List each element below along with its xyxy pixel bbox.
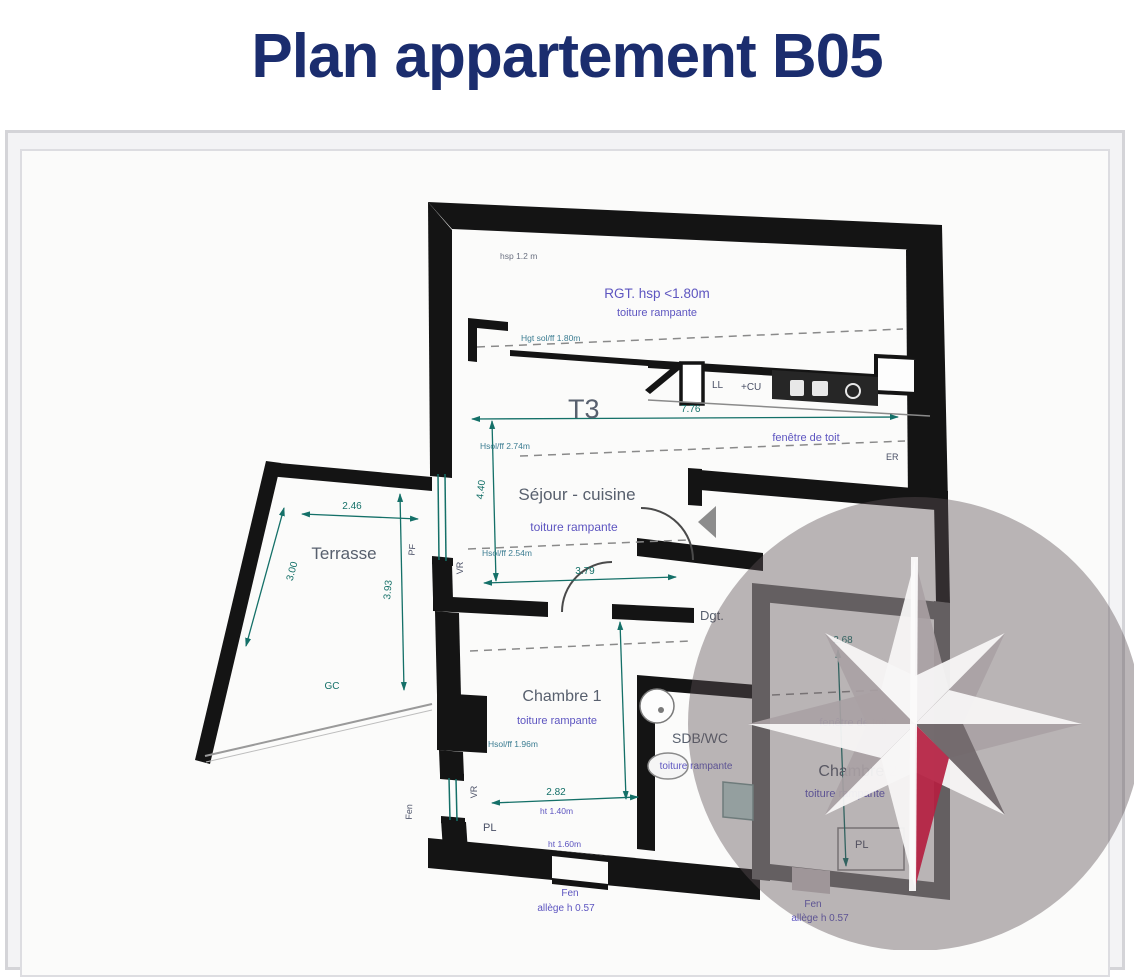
hsp-note: hsp 1.2 m (500, 251, 537, 261)
dim-379: 3.79 (575, 566, 595, 577)
dim-440: 4.40 (475, 479, 488, 500)
tag-vr-1: VR (455, 561, 465, 574)
floor-plan-drawing: T3 Séjour - cuisine Terrasse Chambre 1 S… (0, 0, 1134, 950)
dim-300: 3.00 (285, 560, 301, 582)
tag-pf: PF (407, 543, 418, 556)
terrasse-railing-2 (206, 710, 432, 762)
duct-box (876, 356, 916, 394)
room-terrasse: Terrasse (311, 544, 376, 563)
window-pf-terrasse (430, 468, 453, 566)
tag-vr-2: VR (469, 785, 479, 798)
tag-fen-side: Fen (404, 804, 415, 820)
hsol274-note: Hsol/ff 2.74m (480, 441, 530, 451)
dim-393: 3.93 (382, 579, 395, 600)
sill-note-1: allège h 0.57 (537, 903, 595, 914)
ht160-note: ht 1.60m (548, 839, 581, 849)
tag-er: ER (886, 452, 899, 462)
room-chambre1: Chambre 1 (522, 688, 601, 705)
window-fen-left (440, 772, 465, 825)
entrance-arrow-icon (698, 506, 716, 538)
terrasse-railing (205, 704, 432, 756)
fen-note-1: Fen (561, 888, 578, 899)
rgt-label: RGT. hsp <1.80m (604, 286, 709, 301)
room-sejour: Séjour - cuisine (518, 485, 635, 504)
hsol254-note: Hsol/ff 2.54m (482, 548, 532, 558)
gc-label: GC (325, 681, 340, 692)
sejour-roof-note: toiture rampante (530, 520, 618, 534)
tag-pl-1: PL (483, 822, 496, 834)
tag-ll: LL (712, 380, 724, 391)
rgt-roof-note: toiture rampante (617, 307, 697, 319)
compass-rose-icon (688, 497, 1134, 950)
chambre1-roof-note: toiture rampante (517, 715, 597, 727)
dim-282: 2.82 (546, 787, 566, 798)
ht140-note: ht 1.40m (540, 806, 573, 816)
hgt-sol-note: Hgt sol/ff 1.80m (521, 333, 580, 343)
tag-cu: +CU (741, 382, 761, 393)
roof-window-note-1: fenêtre de toit (772, 432, 839, 444)
hsol196-note: Hsol/ff 1.96m (488, 739, 538, 749)
window-fen-bottom (552, 850, 608, 890)
dim-246: 2.46 (342, 501, 362, 512)
dim-776: 7.76 (681, 404, 701, 415)
unit-type-label: T3 (568, 394, 600, 424)
